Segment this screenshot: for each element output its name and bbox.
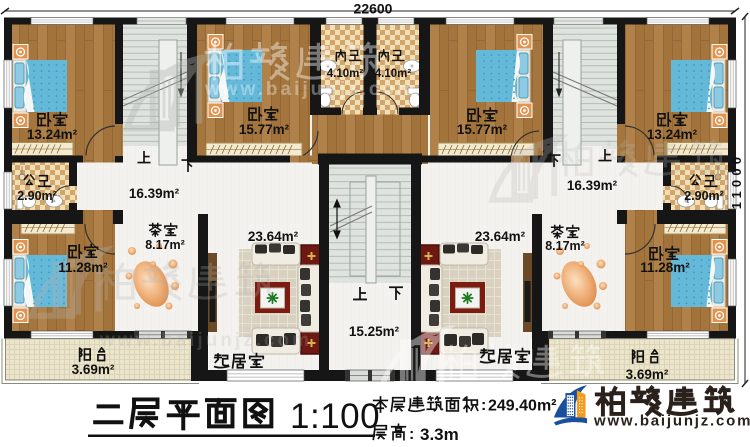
svg-text:15.77m²: 15.77m² (457, 122, 508, 137)
svg-text::: : (481, 397, 486, 414)
svg-text:16.39m²: 16.39m² (129, 186, 180, 201)
svg-text:4.10m²: 4.10m² (327, 68, 364, 80)
svg-text:8.17m²: 8.17m² (145, 238, 185, 252)
svg-text::: : (409, 426, 414, 443)
svg-text:1:100: 1:100 (290, 397, 380, 436)
svg-text:23.64m²: 23.64m² (475, 229, 526, 244)
svg-text:22600: 22600 (354, 1, 393, 17)
svg-text:www.baijunjz.com: www.baijunjz.com (593, 413, 750, 430)
svg-text:3.3m: 3.3m (420, 425, 459, 444)
svg-text:11.28m²: 11.28m² (640, 260, 690, 275)
svg-text:4.10m²: 4.10m² (375, 68, 412, 80)
svg-text:23.64m²: 23.64m² (248, 229, 299, 244)
svg-text:15.77m²: 15.77m² (239, 122, 290, 137)
svg-text:www.baijunjz.com: www.baijunjz.com (204, 79, 417, 100)
svg-text:13.24m²: 13.24m² (27, 127, 78, 142)
svg-text:15.25m²: 15.25m² (349, 324, 400, 339)
svg-text:3.69m²: 3.69m² (626, 367, 669, 382)
svg-text:11000: 11000 (729, 153, 744, 209)
svg-text:11.28m²: 11.28m² (58, 260, 108, 275)
svg-text:8.17m²: 8.17m² (545, 239, 585, 253)
svg-text:13.24m²: 13.24m² (647, 127, 698, 142)
svg-text:2.90m²: 2.90m² (17, 189, 57, 203)
svg-text:2.90m²: 2.90m² (684, 189, 724, 203)
svg-text:249.40m²: 249.40m² (488, 398, 557, 415)
svg-text:3.69m²: 3.69m² (72, 362, 115, 377)
svg-text:www.baijunjz.com: www.baijunjz.com (99, 330, 312, 351)
svg-text:16.39m²: 16.39m² (567, 178, 618, 193)
